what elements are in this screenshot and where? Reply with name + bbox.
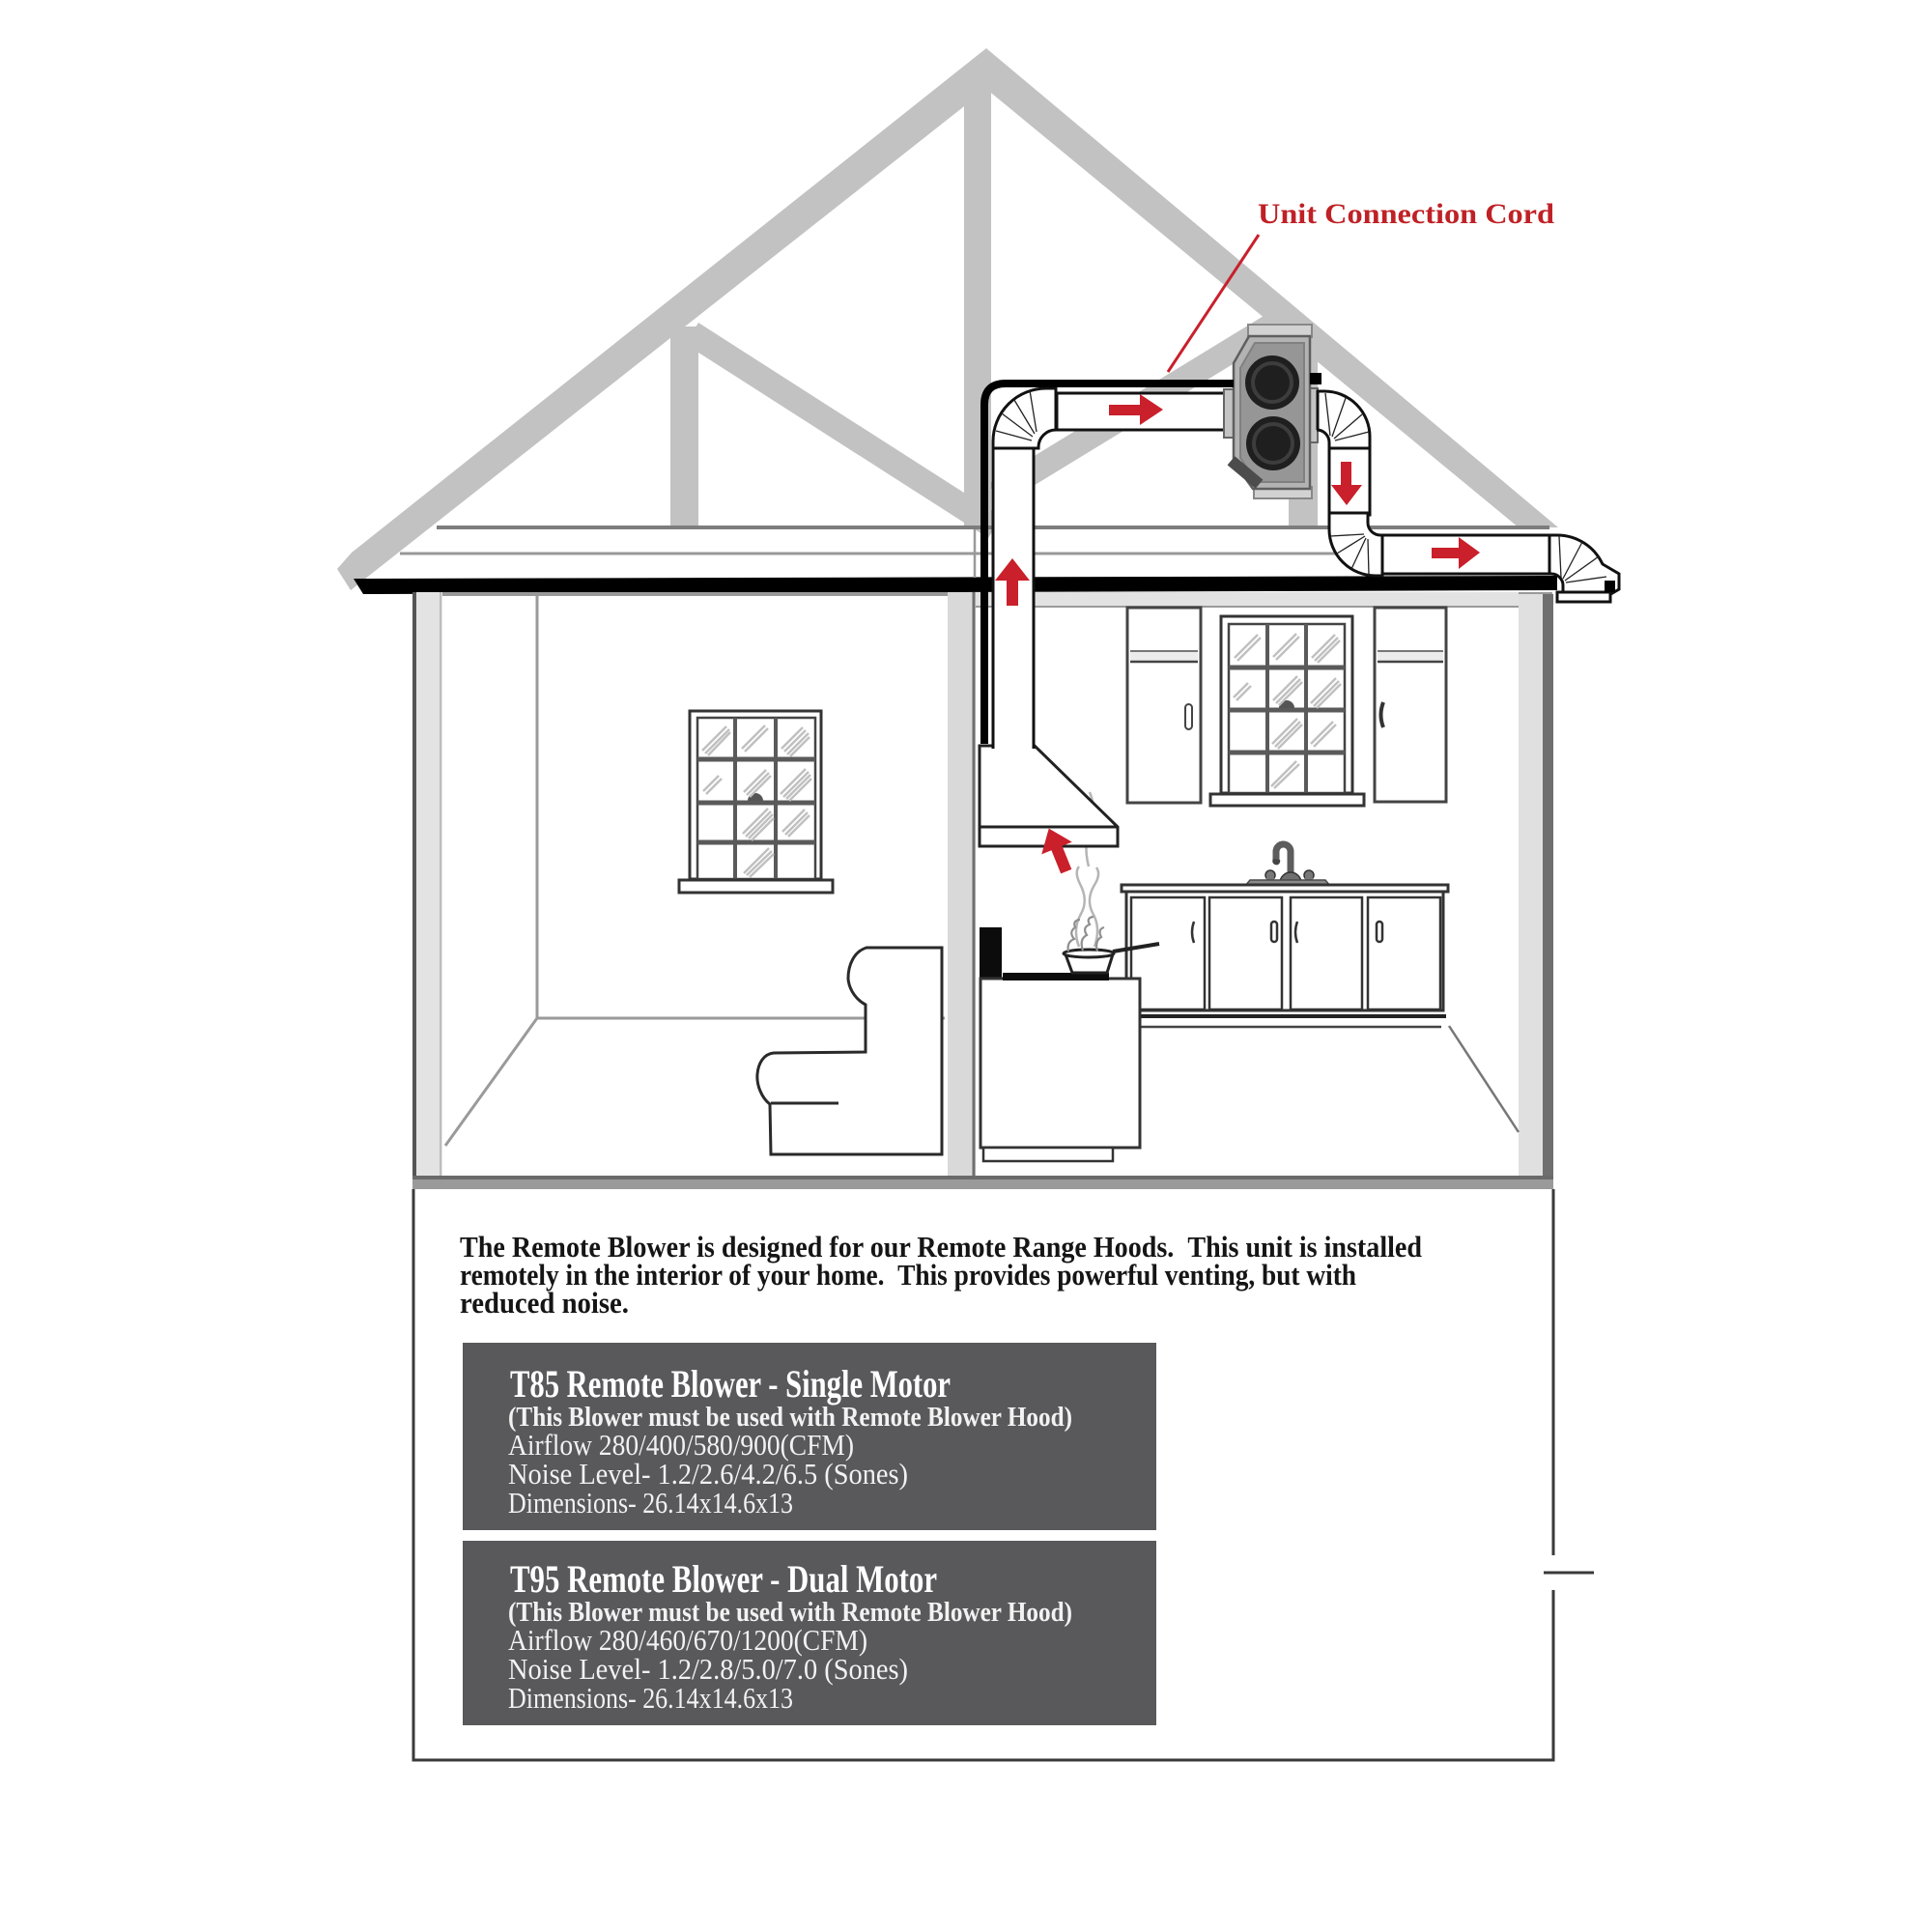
svg-text:Dimensions- 26.14x14.6x13: Dimensions- 26.14x14.6x13 <box>508 1486 793 1520</box>
svg-text:T95 Remote Blower - Dual Motor: T95 Remote Blower - Dual Motor <box>510 1557 937 1601</box>
svg-text:T85 Remote Blower - Single Mot: T85 Remote Blower - Single Motor <box>510 1362 951 1406</box>
svg-text:reduced noise.: reduced noise. <box>460 1286 629 1320</box>
svg-text:Unit Connection Cord: Unit Connection Cord <box>1258 198 1554 230</box>
svg-text:Dimensions- 26.14x14.6x13: Dimensions- 26.14x14.6x13 <box>508 1681 793 1715</box>
